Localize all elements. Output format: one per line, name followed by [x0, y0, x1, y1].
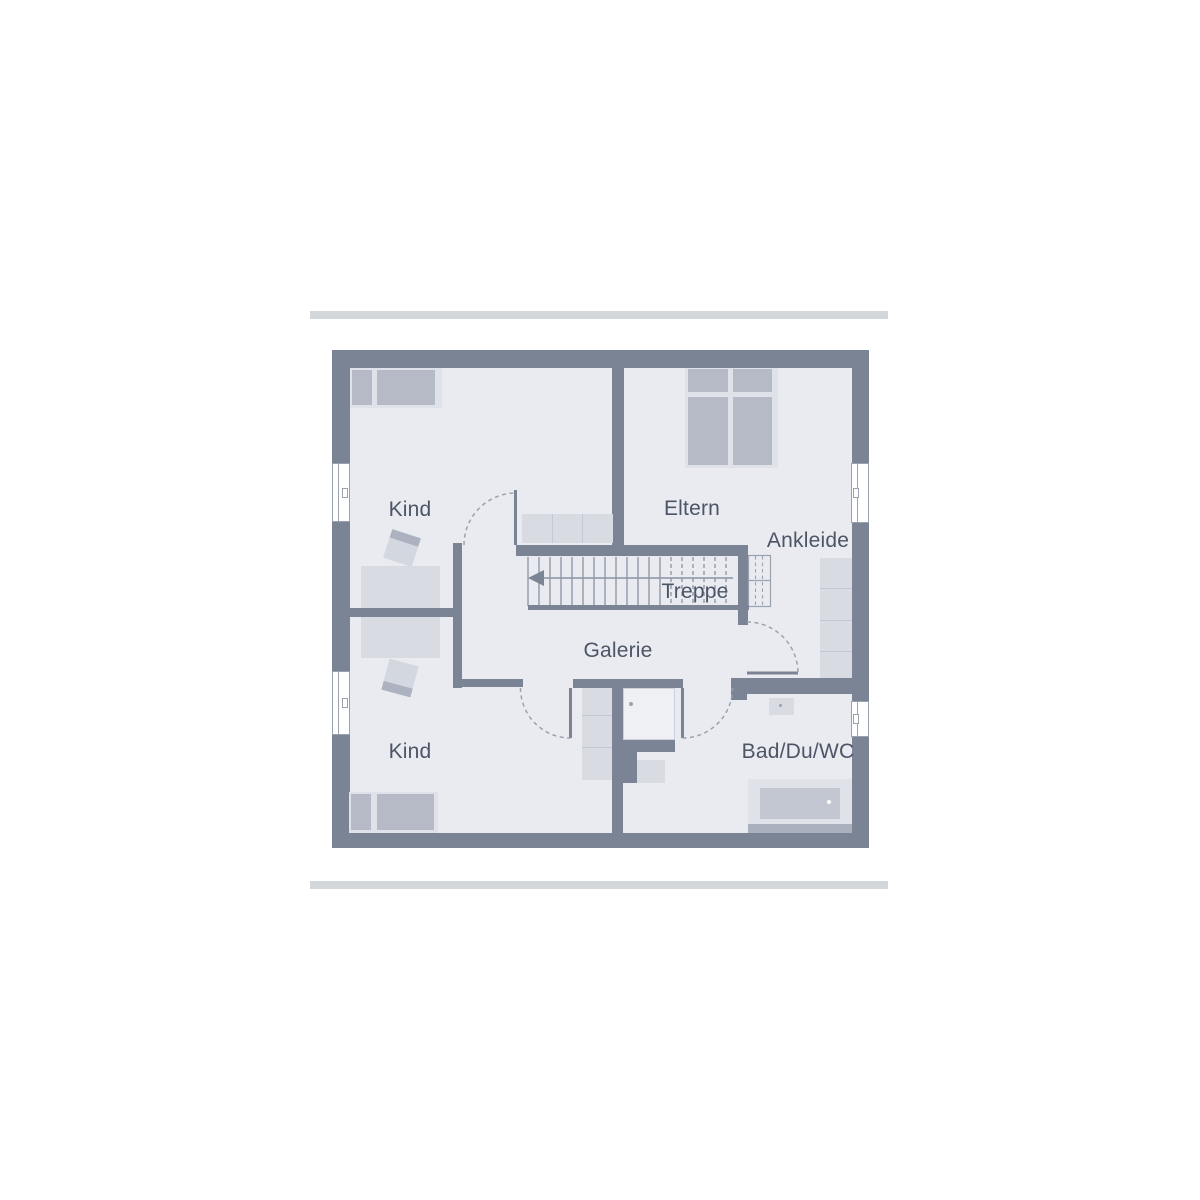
room-label-treppe: Treppe [662, 580, 729, 604]
door-swing-arc [521, 688, 571, 738]
room-label-kind-top: Kind [389, 498, 432, 522]
room-label-eltern: Eltern [664, 497, 720, 521]
bottom-accent-bar [310, 881, 888, 889]
door-swing-arc [683, 688, 733, 738]
stair-treads [528, 557, 660, 606]
door-swing-arc [747, 622, 798, 673]
stair-direction-arrow [528, 570, 544, 586]
floor-plan: Kind Eltern Ankleide Treppe Galerie Kind… [332, 350, 869, 848]
door-swing-arc [464, 493, 516, 545]
stairs-and-doors-overlay [332, 350, 869, 848]
screenshot-canvas: Kind Eltern Ankleide Treppe Galerie Kind… [0, 0, 1200, 1200]
room-label-bad: Bad/Du/WC [742, 740, 855, 764]
room-label-ankleide: Ankleide [767, 529, 849, 553]
top-accent-bar [310, 311, 888, 319]
room-label-galerie: Galerie [583, 639, 652, 663]
room-label-kind-bottom: Kind [389, 740, 432, 764]
stair-bottom-edge [528, 605, 749, 610]
